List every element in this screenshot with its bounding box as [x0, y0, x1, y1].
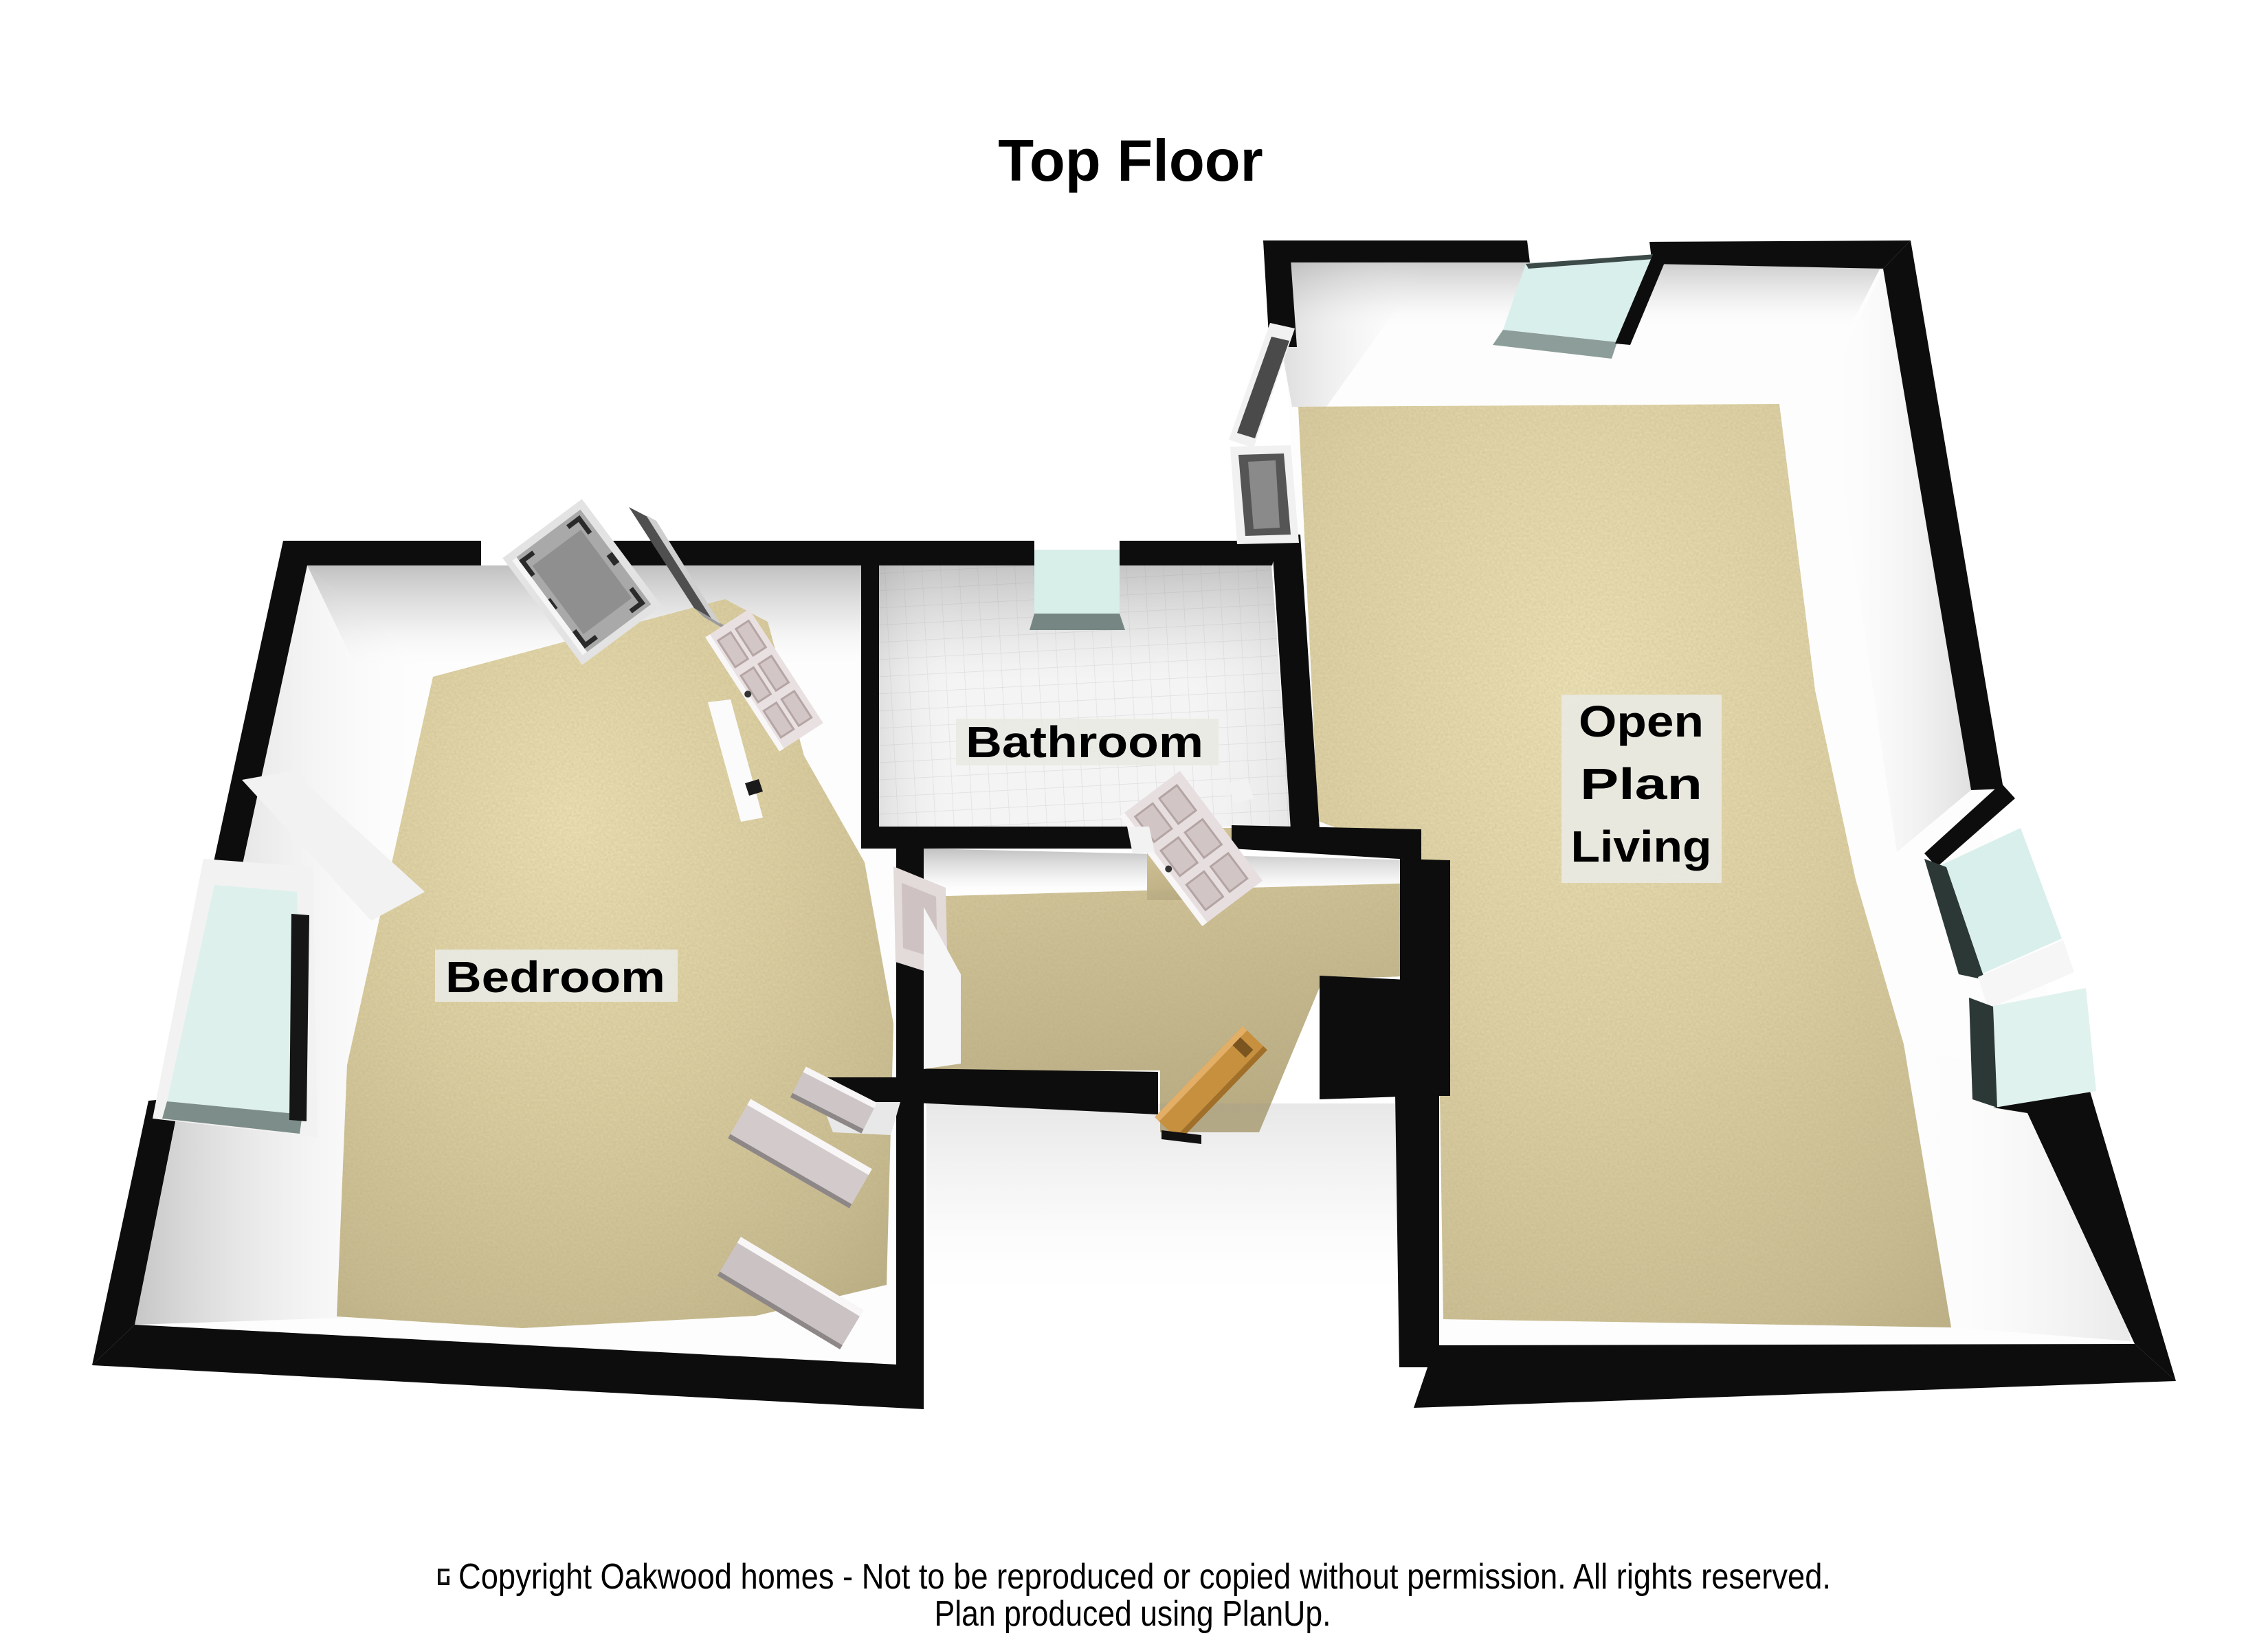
- svg-text:Plan produced using PlanUp.: Plan produced using PlanUp.: [935, 1594, 1331, 1634]
- svg-text:Plan: Plan: [1580, 759, 1702, 809]
- svg-text:Top Floor: Top Floor: [998, 128, 1263, 194]
- svg-text:Living: Living: [1571, 822, 1712, 871]
- svg-text:Copyright Oakwood homes - Not: Copyright Oakwood homes - Not to be repr…: [458, 1557, 1831, 1597]
- svg-text:Bedroom: Bedroom: [445, 952, 665, 1002]
- svg-text:Open: Open: [1579, 697, 1704, 746]
- svg-text:Bathroom: Bathroom: [966, 717, 1203, 767]
